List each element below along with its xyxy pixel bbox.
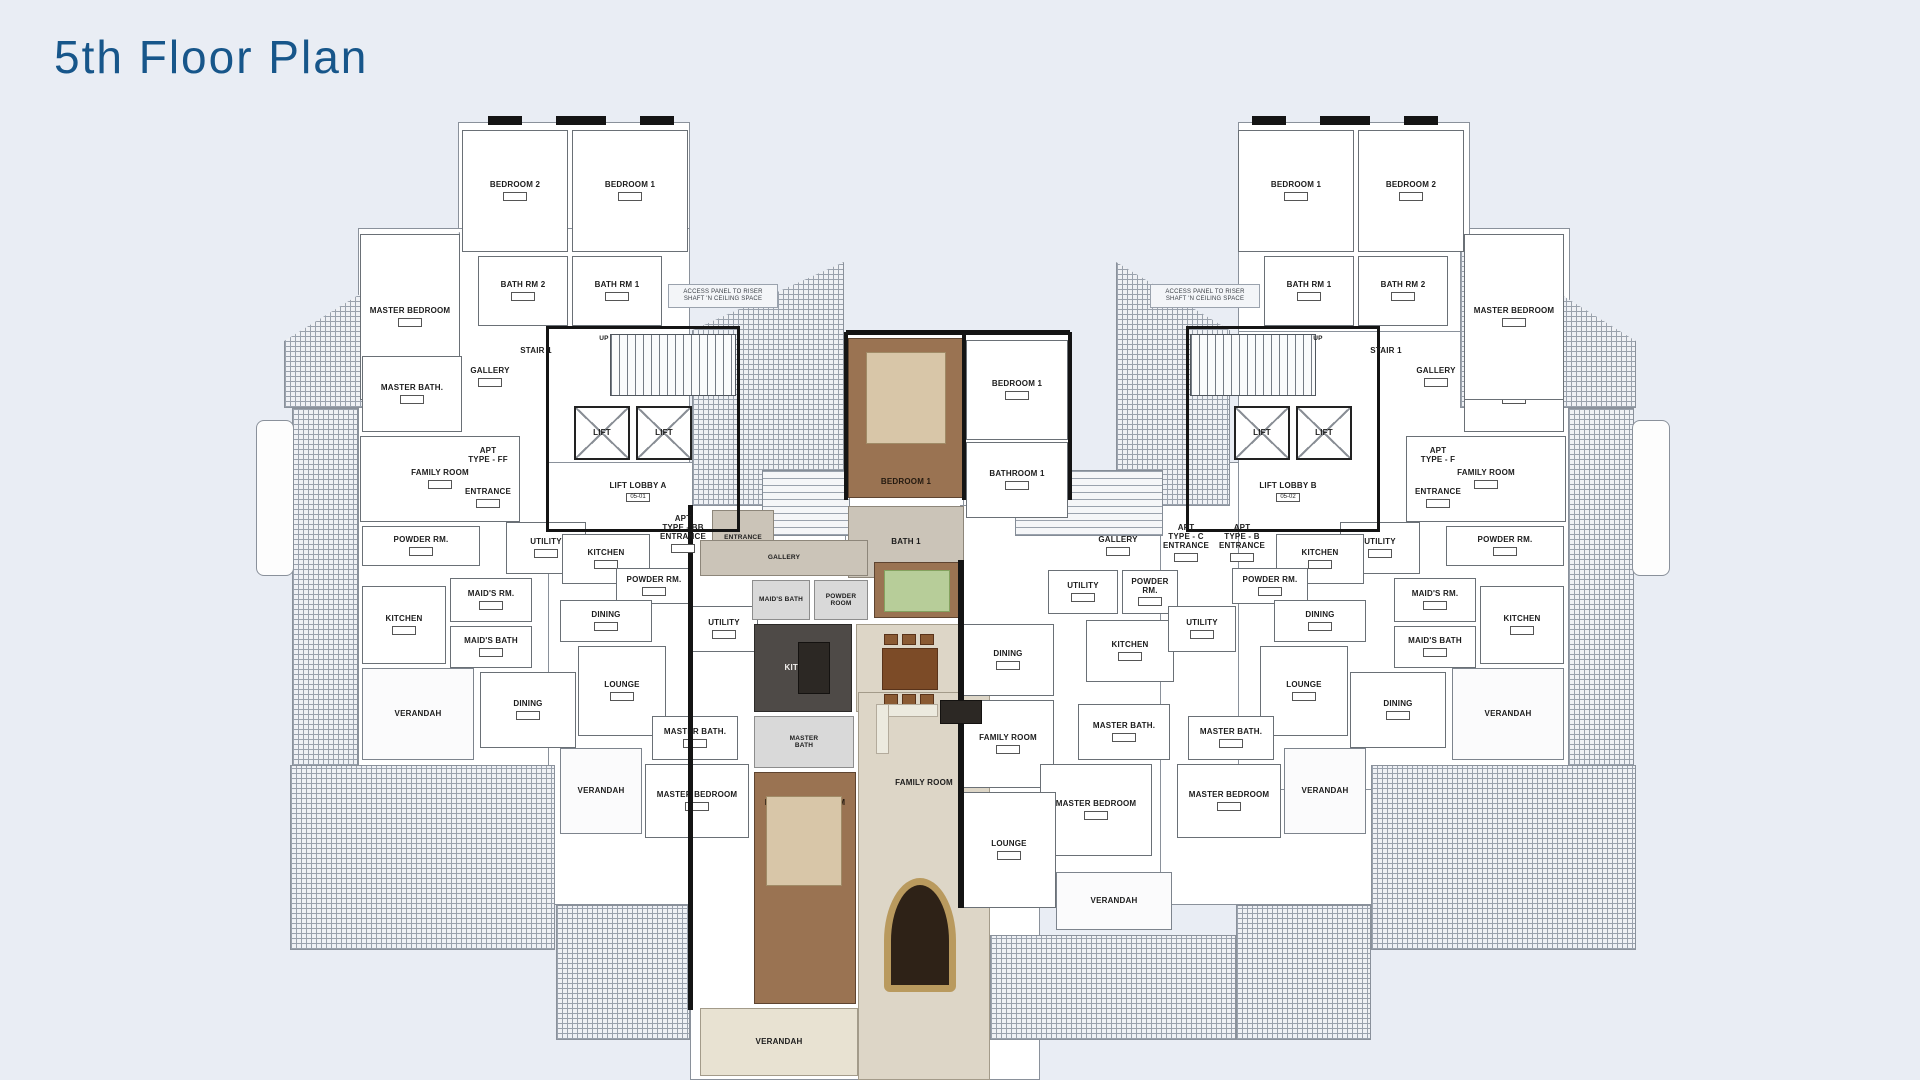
dining-chair (884, 634, 898, 645)
bathroom-1-c-label: BATHROOM 1 (989, 470, 1044, 479)
lounge-b-label: LOUNGE (1286, 681, 1321, 690)
dining-b-label: DINING (1305, 611, 1334, 620)
master-bath-c: MASTER BATH. (1078, 704, 1170, 760)
maids-bath-right: MAID'S BATH (1394, 626, 1476, 668)
dining-chair (902, 634, 916, 645)
apt-ff-entrance-label: ENTRANCE (465, 488, 511, 497)
lounge-c-label: LOUNGE (991, 840, 1026, 849)
apt-b-entrance-label: APT TYPE - B ENTRANCE (1219, 524, 1265, 550)
powder-rm-right-code (1493, 547, 1517, 556)
bedroom-2-left-label: BEDROOM 2 (490, 181, 540, 190)
dining-left: DINING (480, 672, 576, 748)
up-right-label: UP (1313, 335, 1322, 342)
verandah-b: VERANDAH (1284, 748, 1366, 834)
maids-rm-right-code (1423, 601, 1447, 610)
kitchen-bb-label: KITCHEN (588, 549, 625, 558)
dining-right-code (1386, 711, 1410, 720)
bathroom-1-c: BATHROOM 1 (966, 442, 1068, 518)
bath-rm-2-right: BATH RM 2 (1358, 256, 1448, 326)
bath-rm-2-right-label: BATH RM 2 (1381, 281, 1426, 290)
powder-rm-right-label: POWDER RM. (1478, 536, 1533, 545)
wall-bar (844, 332, 848, 500)
bath-rm-2-right-code (1391, 292, 1415, 301)
apt-b-entrance: APT TYPE - B ENTRANCE (1208, 518, 1276, 568)
bath-rm-2-left-label: BATH RM 2 (501, 281, 546, 290)
family-room-left-code (428, 480, 452, 489)
roof-hatch-left-strip (292, 408, 358, 766)
utility-right-label: UTILITY (1364, 538, 1396, 547)
maids-bath-right-label: MAID'S BATH (1408, 637, 1462, 646)
dining-bb-label: DINING (591, 611, 620, 620)
utility-c-code (1071, 593, 1095, 602)
apt-c-entrance-code (1174, 553, 1198, 562)
master-bath-left: MASTER BATH. (362, 356, 462, 432)
up-left-label: UP (599, 335, 608, 342)
powder-rm-c-code (1138, 597, 1162, 606)
gallery-featured: GALLERY (700, 540, 868, 576)
bedroom-2-left: BEDROOM 2 (462, 130, 568, 252)
verandah-bb-label: VERANDAH (578, 787, 625, 796)
apt-c-entrance-label: APT TYPE - C ENTRANCE (1163, 524, 1209, 550)
lounge-bb-code (610, 692, 634, 701)
apt-f-entrance-label: ENTRANCE (1415, 488, 1461, 497)
lift-lobby-b-code: 05-02 (1276, 493, 1300, 502)
utility-b-label: UTILITY (1186, 619, 1218, 628)
gallery-left-code (478, 378, 502, 387)
wall-bar (1404, 116, 1438, 125)
bedroom-2-right-code (1399, 192, 1423, 201)
wall-bar (1320, 116, 1370, 125)
utility-c-label: UTILITY (1067, 582, 1099, 591)
powder-rm-bb-label: POWDER RM. (627, 576, 682, 585)
balcony-right (1632, 420, 1670, 576)
powder-rm-left-code (409, 547, 433, 556)
utility-bb-code (712, 630, 736, 639)
dining-left-label: DINING (513, 700, 542, 709)
apt-f-entrance-code (1426, 499, 1450, 508)
powder-rm-bb: POWDER RM. (616, 568, 692, 604)
roof-hatch-left-bottom (290, 765, 555, 950)
apt-type-f: APT TYPE - F (1400, 438, 1476, 474)
sofa-featured-b (876, 704, 889, 754)
powder-room-featured: POWDER ROOM (814, 580, 868, 620)
dining-b: DINING (1274, 600, 1366, 642)
dining-b-code (1308, 622, 1332, 631)
dining-chair (920, 634, 934, 645)
wall-bar (1068, 332, 1072, 500)
powder-rm-left: POWDER RM. (362, 526, 480, 566)
lounge-c-code (997, 851, 1021, 860)
master-bath-left-label: MASTER BATH. (381, 384, 443, 393)
wall-bar (688, 505, 693, 1010)
gallery-c-label: GALLERY (1098, 536, 1137, 545)
roof-hatch-center-right-bottom (990, 935, 1236, 1040)
gallery-right-label: GALLERY (1416, 367, 1455, 376)
dining-table-featured (882, 648, 938, 690)
verandah-c-label: VERANDAH (1091, 897, 1138, 906)
bedroom-1-c-label: BEDROOM 1 (992, 380, 1042, 389)
up-right: UP (1306, 334, 1330, 344)
verandah-c: VERANDAH (1056, 872, 1172, 930)
dining-right-label: DINING (1383, 700, 1412, 709)
apt-type-f-label: APT TYPE - F (1421, 447, 1456, 465)
bedroom-1-left-code (618, 192, 642, 201)
maids-bath-left-label: MAID'S BATH (464, 637, 518, 646)
maids-bath-right-code (1423, 648, 1447, 657)
bath-rm-1-right-code (1297, 292, 1321, 301)
kitchen-b-code (1308, 560, 1332, 569)
bedroom-1-featured-label: BEDROOM 1 (881, 478, 931, 487)
lounge-c: LOUNGE (962, 792, 1056, 908)
family-room-featured-label: FAMILY ROOM (895, 779, 953, 788)
apt-b-entrance-code (1230, 553, 1254, 562)
verandah-left-label: VERANDAH (395, 710, 442, 719)
kitchen-left: KITCHEN (362, 586, 446, 664)
maids-bath-left: MAID'S BATH (450, 626, 532, 668)
bedroom-1-left-label: BEDROOM 1 (605, 181, 655, 190)
access-note-left-label: ACCESS PANEL TO RISER SHAFT 'N CEILING S… (683, 289, 762, 302)
verandah-featured-label: VERANDAH (756, 1038, 803, 1047)
bath-rm-1-right-label: BATH RM 1 (1287, 281, 1332, 290)
master-bedroom-b-code (1217, 802, 1241, 811)
powder-rm-b-code (1258, 587, 1282, 596)
verandah-right-label: VERANDAH (1485, 710, 1532, 719)
verandah-featured: VERANDAH (700, 1008, 858, 1076)
wall-bar (846, 330, 968, 335)
bath-rm-2-left-code (511, 292, 535, 301)
utility-bb: UTILITY (690, 606, 758, 652)
apt-bb-entrance-code (671, 544, 695, 553)
bath-rm-1-left-label: BATH RM 1 (595, 281, 640, 290)
gallery-right-code (1424, 378, 1448, 387)
up-left: UP (592, 334, 616, 344)
dining-right: DINING (1350, 672, 1446, 748)
maids-rm-right-label: MAID'S RM. (1412, 590, 1459, 599)
bedroom-2-left-code (503, 192, 527, 201)
dining-c-code (996, 661, 1020, 670)
master-bath-featured: MASTER BATH (754, 716, 854, 768)
master-bath-left-code (400, 395, 424, 404)
master-bath-b-code (1219, 739, 1243, 748)
bathroom-1-c-code (1005, 481, 1029, 490)
kitchen-b-label: KITCHEN (1302, 549, 1339, 558)
access-note-right-label: ACCESS PANEL TO RISER SHAFT 'N CEILING S… (1165, 289, 1244, 302)
roof-hatch-right-bottom (1371, 765, 1636, 950)
bedroom-2-right: BEDROOM 2 (1358, 130, 1464, 252)
master-bath-c-label: MASTER BATH. (1093, 722, 1155, 731)
family-room-c-label: FAMILY ROOM (979, 734, 1037, 743)
gallery-left-label: GALLERY (470, 367, 509, 376)
bath-rm-1-left-code (605, 292, 629, 301)
wall-bar (1252, 116, 1286, 125)
dining-left-code (516, 711, 540, 720)
gallery-c-code (1106, 547, 1130, 556)
powder-rm-b: POWDER RM. (1232, 568, 1308, 604)
utility-b-code (1190, 630, 1214, 639)
bath-rm-1-left: BATH RM 1 (572, 256, 662, 326)
grand-stair-arch (884, 878, 956, 992)
utility-left-label: UTILITY (530, 538, 562, 547)
apt-f-entrance: ENTRANCE (1400, 488, 1476, 508)
powder-rm-c-label: POWDER RM. (1123, 578, 1177, 596)
master-bedroom-b-label: MASTER BEDROOM (1189, 791, 1270, 800)
dining-bb: DINING (560, 600, 652, 642)
lift-lobby-a-label: LIFT LOBBY A (609, 482, 666, 491)
gallery-featured-label: GALLERY (768, 554, 800, 561)
bedroom-1-right-label: BEDROOM 1 (1271, 181, 1321, 190)
kitchen-c-code (1118, 652, 1142, 661)
utility-c: UTILITY (1048, 570, 1118, 614)
wall-bar (640, 116, 674, 125)
master-bedroom-b: MASTER BEDROOM (1177, 764, 1281, 838)
apt-type-ff: APT TYPE - FF (450, 438, 526, 474)
maids-rm-left: MAID'S RM. (450, 578, 532, 622)
bath-rm-1-right: BATH RM 1 (1264, 256, 1354, 326)
verandah-bb: VERANDAH (560, 748, 642, 834)
maids-bath-left-code (479, 648, 503, 657)
bath-1-featured-label: BATH 1 (891, 538, 921, 547)
lift-lobby-b: LIFT LOBBY B05-02 (1198, 464, 1378, 520)
gallery-right: GALLERY (1404, 364, 1468, 390)
lounge-bb-label: LOUNGE (604, 681, 639, 690)
lift-lobby-a-code: 05-01 (626, 493, 650, 502)
balcony-left (256, 420, 294, 576)
powder-room-featured-label: POWDER ROOM (826, 593, 856, 607)
master-bedroom-right-upper: MASTER BEDROOM (1464, 234, 1564, 400)
wall-bar (958, 560, 964, 908)
stair-1-left-label: STAIR 1 (506, 344, 566, 358)
master-bath-b: MASTER BATH. (1188, 716, 1274, 760)
powder-rm-b-label: POWDER RM. (1243, 576, 1298, 585)
master-bedroom-c: MASTER BEDROOM (1040, 764, 1152, 856)
maids-rm-right: MAID'S RM. (1394, 578, 1476, 622)
kitchen-left-label: KITCHEN (386, 615, 423, 624)
apt-ff-entrance: ENTRANCE (450, 488, 526, 508)
master-bath-bb: MASTER BATH. (652, 716, 738, 760)
dining-c: DINING (962, 624, 1054, 696)
dining-c-label: DINING (993, 650, 1022, 659)
apt-type-ff-label: APT TYPE - FF (468, 447, 508, 465)
kitchen-bb-code (594, 560, 618, 569)
utility-bb-label: UTILITY (708, 619, 740, 628)
roof-hatch-bb-bottom (556, 905, 690, 1040)
master-bath-c-code (1112, 733, 1136, 742)
gallery-left: GALLERY (458, 364, 522, 390)
powder-rm-bb-code (642, 587, 666, 596)
verandah-b-label: VERANDAH (1302, 787, 1349, 796)
master-bedroom-c-code (1084, 811, 1108, 820)
coffee-table-featured (940, 700, 982, 724)
bedroom-2-right-label: BEDROOM 2 (1386, 181, 1436, 190)
wall-bar (962, 332, 966, 500)
family-room-right-code (1474, 480, 1498, 489)
kitchen-right: KITCHEN (1480, 586, 1564, 664)
master-bedroom-bb: MASTER BEDROOM (645, 764, 749, 838)
kitchen-right-code (1510, 626, 1534, 635)
verandah-left: VERANDAH (362, 668, 474, 760)
lounge-b-code (1292, 692, 1316, 701)
bedroom-1-left: BEDROOM 1 (572, 130, 688, 252)
stair-1-left-label-label: STAIR 1 (520, 347, 551, 356)
bedroom-1-right: BEDROOM 1 (1238, 130, 1354, 252)
utility-left-code (534, 549, 558, 558)
master-bath-bb-code (683, 739, 707, 748)
wall-bar (556, 116, 606, 125)
dining-bb-code (594, 622, 618, 631)
kitchen-island-featured (798, 642, 830, 694)
master-bedroom-left-upper-code (398, 318, 422, 327)
maids-rm-left-label: MAID'S RM. (468, 590, 515, 599)
roof-hatch-b-bottom (1236, 905, 1371, 1040)
stair-1-right-label: STAIR 1 (1356, 344, 1416, 358)
verandah-right: VERANDAH (1452, 668, 1564, 760)
kitchen-left-code (392, 626, 416, 635)
floor-plan: BEDROOM 2BEDROOM 1BATH RM 2BATH RM 1MAST… (0, 0, 1920, 1080)
roof-hatch-right-strip (1568, 408, 1634, 766)
bed-maid-featured (884, 570, 950, 612)
master-bedroom-left-upper-label: MASTER BEDROOM (370, 307, 451, 316)
wall-bar (964, 330, 1070, 335)
bed-featured-master (766, 796, 842, 886)
courtyard-steps-left (762, 470, 850, 536)
access-note-right: ACCESS PANEL TO RISER SHAFT 'N CEILING S… (1150, 284, 1260, 308)
powder-rm-right: POWDER RM. (1446, 526, 1564, 566)
apt-bb-entrance-label: APT TYPE - BB ENTRANCE (660, 515, 706, 541)
powder-rm-left-label: POWDER RM. (394, 536, 449, 545)
maids-bath-featured: MAID'S BATH (752, 580, 810, 620)
stair-1-right-label-label: STAIR 1 (1370, 347, 1401, 356)
master-bath-bb-label: MASTER BATH. (664, 728, 726, 737)
master-bedroom-bb-label: MASTER BEDROOM (657, 791, 738, 800)
lift-lobby-b-label: LIFT LOBBY B (1259, 482, 1316, 491)
bedroom-1-right-code (1284, 192, 1308, 201)
maids-rm-left-code (479, 601, 503, 610)
master-bedroom-right-upper-label: MASTER BEDROOM (1474, 307, 1555, 316)
master-bath-b-label: MASTER BATH. (1200, 728, 1262, 737)
apt-ff-entrance-code (476, 499, 500, 508)
bath-rm-2-left: BATH RM 2 (478, 256, 568, 326)
master-bath-featured-label: MASTER BATH (790, 735, 819, 749)
master-bedroom-right-upper-code (1502, 318, 1526, 327)
family-room-c-code (996, 745, 1020, 754)
kitchen-right-label: KITCHEN (1504, 615, 1541, 624)
utility-right-code (1368, 549, 1392, 558)
access-note-left: ACCESS PANEL TO RISER SHAFT 'N CEILING S… (668, 284, 778, 308)
master-bedroom-c-label: MASTER BEDROOM (1056, 800, 1137, 809)
kitchen-c-label: KITCHEN (1112, 641, 1149, 650)
wall-bar (488, 116, 522, 125)
apt-bb-entrance: APT TYPE - BB ENTRANCE (648, 510, 718, 558)
maids-bath-featured-label: MAID'S BATH (759, 596, 803, 603)
bed-featured-bedroom1 (866, 352, 946, 444)
bedroom-1-c: BEDROOM 1 (966, 340, 1068, 440)
bedroom-1-c-code (1005, 391, 1029, 400)
utility-b: UTILITY (1168, 606, 1236, 652)
kitchen-c: KITCHEN (1086, 620, 1174, 682)
